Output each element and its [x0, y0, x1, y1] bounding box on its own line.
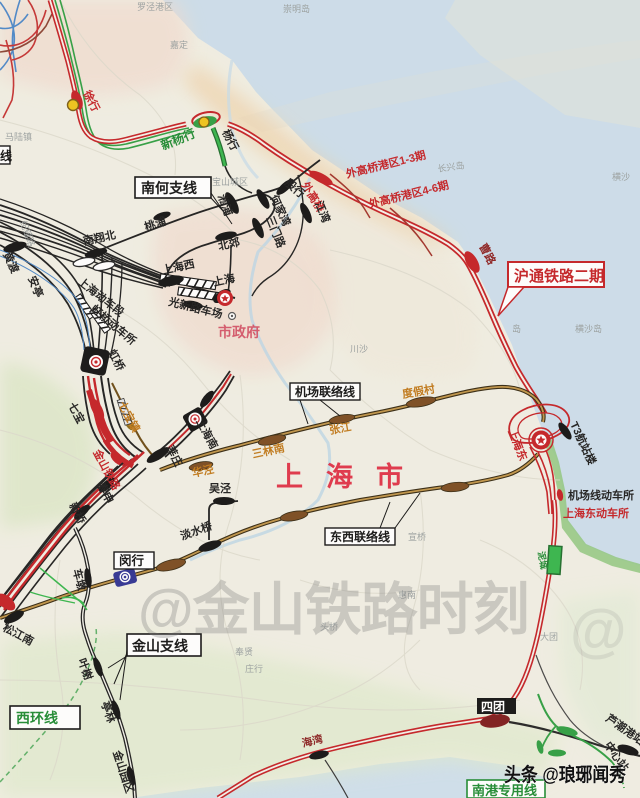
svg-text:@: @ — [570, 598, 627, 663]
svg-text:头条 @琅琊闻秀: 头条 @琅琊闻秀 — [504, 763, 627, 786]
svg-text:@金山铁路时刻: @金山铁路时刻 — [138, 578, 529, 642]
